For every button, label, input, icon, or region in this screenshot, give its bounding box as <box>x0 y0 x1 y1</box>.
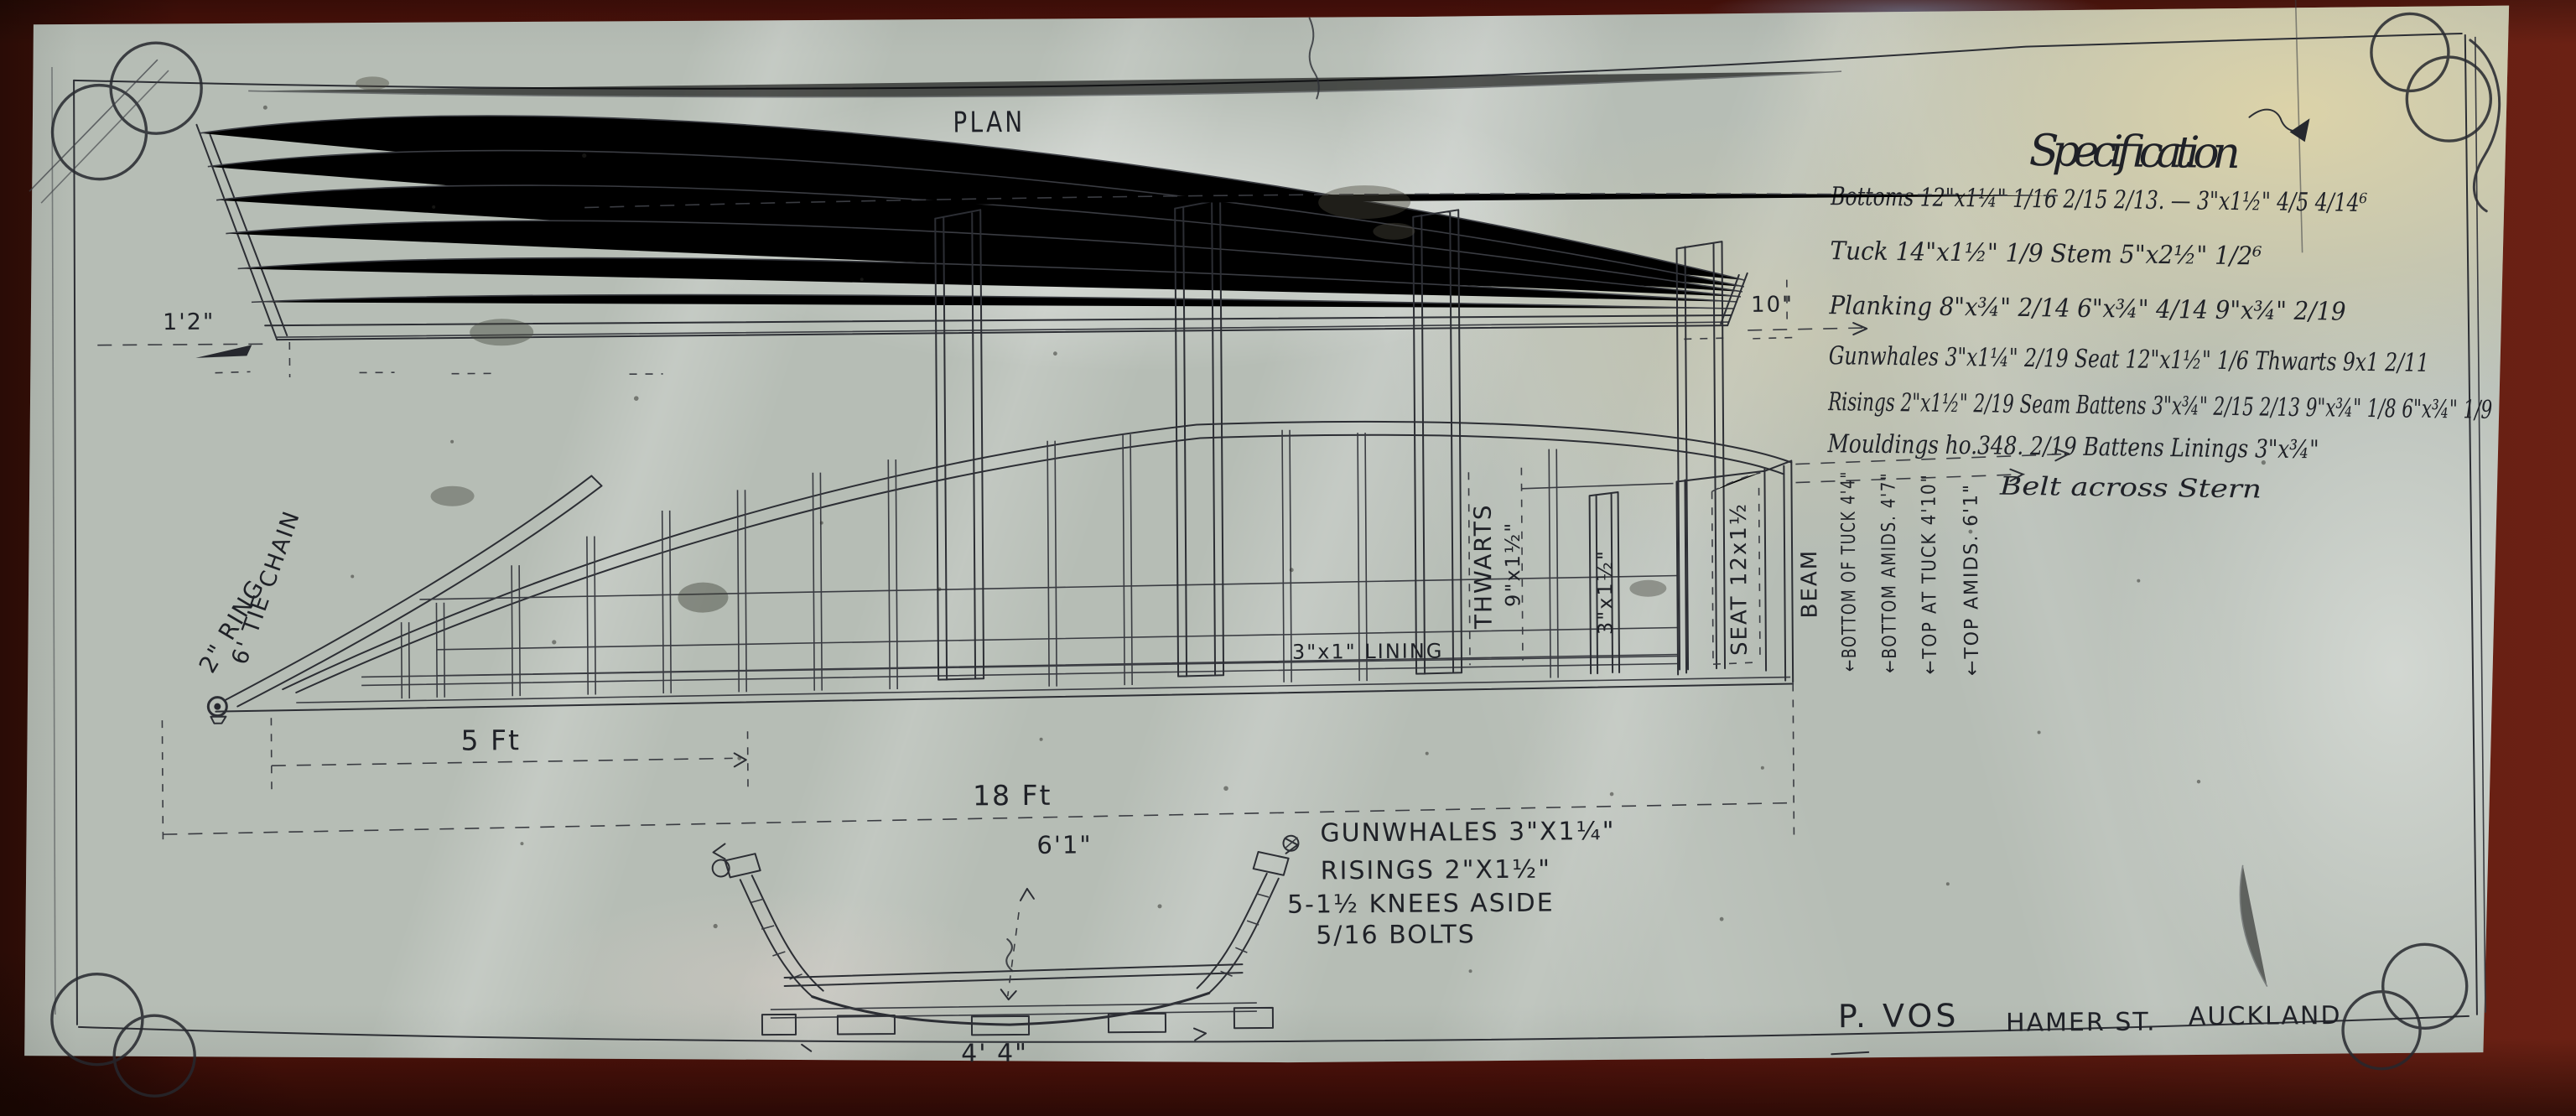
beam-label: BEAM <box>1797 549 1823 619</box>
spec-footnote: Belt across Stern <box>1999 472 2262 505</box>
maker-city: AUCKLAND <box>2189 1001 2342 1031</box>
maker-signature: P. VOS HAMER ST. AUCKLAND <box>1831 994 2342 1054</box>
section-top-width-label: 6'1" <box>1036 830 1092 859</box>
spec-line-risings: Risings 2"x1½" 2/19 Seam Battens 3"x¾" 2… <box>1827 387 2492 425</box>
spec-line-planking: Planking 8"x¾" 2/14 6"x¾" 4/14 9"x¾" 2/1… <box>1828 291 2345 327</box>
thwarts-label: THWARTS <box>1469 503 1498 630</box>
title-line-1: PLAN <box>953 106 1025 140</box>
section-note-risings: RISINGS 2"X1½" <box>1321 855 1552 886</box>
bottom-amids-label: ←BOTTOM AMIDS. 4'7" <box>1877 472 1901 673</box>
section-note-gunwhales: GUNWHALES 3"X1¼" <box>1320 817 1615 848</box>
blueprint-drawing: PLAN OF BOAT FOR WAITOMO CAVES Specifica… <box>0 0 2576 1116</box>
bottom-of-tuck-label: ←BOTTOM OF TUCK 4'4" <box>1837 470 1861 672</box>
profile-stern-height-label: 10" <box>1751 293 1794 318</box>
dim-5ft-label: 5 Ft <box>460 724 521 756</box>
dim-18ft-label: 18 Ft <box>973 779 1052 812</box>
spec-line-mouldings: Mouldings ho.348. 2/19 Battens Linings 3… <box>1827 429 2319 465</box>
section-bottom-width-label: 4' 4" <box>961 1039 1028 1069</box>
spec-line-bottoms: Bottoms 12"x1¼" 1/16 2/15 2/13. — 3"x1½"… <box>1830 182 2367 218</box>
section-notes: GUNWHALES 3"X1¼" RISINGS 2"X1½" 5-1½ KNE… <box>1286 817 1616 951</box>
maker-street: HAMER ST. <box>2006 1008 2157 1038</box>
frame-size-label: 3"x1½" <box>1593 549 1618 635</box>
section-note-bolts: 5/16 BOLTS <box>1316 920 1476 950</box>
lining-label: 3"x1" LINING <box>1292 639 1444 663</box>
maker-name: P. VOS <box>1838 997 1960 1035</box>
top-amids-label: ←TOP AMIDS. 6'1" <box>1961 483 1984 676</box>
specification-heading: Specification <box>2029 126 2241 179</box>
section-view-linework <box>712 836 1300 1052</box>
spec-line-tuck: Tuck 14"x1½" 1/9 Stem 5"x2½" 1/2⁶ <box>1830 236 2262 271</box>
top-at-tuck-label: ←TOP AT TUCK 4'10" <box>1918 473 1941 674</box>
section-note-knees: 5-1½ KNEES ASIDE <box>1287 889 1555 920</box>
spec-line-gunwhales: Gunwhales 3"x1¼" 2/19 Seat 12"x1½" 1/6 T… <box>1829 341 2429 378</box>
photo-of-boat-plan: { "colors": { "wall": "#55130c", "paper"… <box>0 0 2576 1116</box>
seat-label: SEAT 12x1½ <box>1727 502 1753 656</box>
thwarts-size-label: 9"x1½" <box>1501 522 1525 607</box>
profile-bow-height-label: 1'2" <box>163 309 215 335</box>
specification-block: Specification Bottoms 12"x1¼" 1/16 2/15 … <box>1826 123 2495 507</box>
